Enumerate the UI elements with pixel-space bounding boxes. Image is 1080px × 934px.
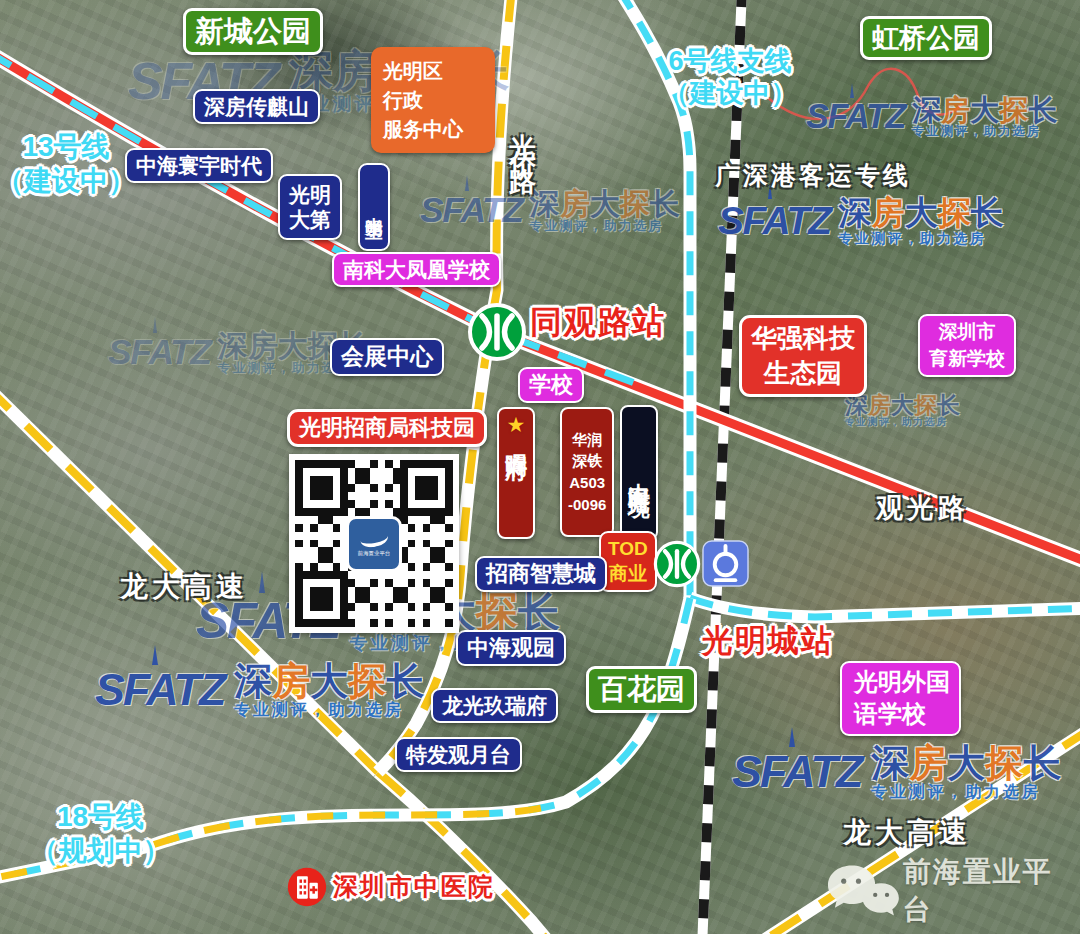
estate-label-chuanqishan: 深房传麒山 — [193, 89, 320, 124]
school-label-nankeda: 南科大凤凰学校 — [332, 252, 501, 287]
qr-logo-text: 前海置业平台 — [358, 549, 390, 557]
qr-code: 前海置业平台 — [289, 454, 459, 633]
plot-label-huarun: 华润 深铁 A503 -0096 — [560, 407, 614, 537]
railway-station-icon — [702, 540, 749, 591]
convention-center-label: 会展中心 — [330, 338, 444, 376]
metro-station-icon — [653, 540, 701, 592]
gov-center-label: 光明区 行政 服务中心 — [371, 47, 495, 153]
park-label-baihua: 百花园 — [586, 666, 697, 713]
station-label-guangmingcheng: 光明城站 — [702, 622, 834, 659]
transit-lines-overlay — [0, 0, 1080, 934]
estate-label-jiurui: 龙光玖瑞府 — [431, 688, 558, 723]
project-label-runhui: ★ 润晖府 — [497, 407, 535, 539]
line18-label: 18号线 （规划中） — [18, 800, 183, 867]
road-label-guanguang: 观光路 — [876, 492, 969, 524]
longda-se-casing — [378, 772, 568, 934]
satellite-map: SFATZ 深房大探长专业测评，助力选房 SFATZ 深房大探长专业测评，助力选… — [0, 0, 1080, 934]
estate-label-tefa: 特发观月台 — [395, 737, 522, 772]
road-label-longda-west: 龙大高速 — [120, 570, 248, 604]
huaqiang-eco-park-label: 华强科技 生态园 — [739, 315, 867, 397]
metro-station-icon — [467, 302, 527, 366]
school-label-generic: 学校 — [518, 367, 584, 403]
estate-label-guanyuan: 中海观园 — [456, 630, 566, 666]
estate-label-dadi: 光明 大第 — [278, 174, 342, 240]
station-label-tongguan: 同观路站 — [530, 303, 666, 341]
estate-label-zhaoshang-smart: 招商智慧城 — [475, 556, 607, 592]
star-icon: ★ — [507, 414, 526, 435]
road-label-guangqiao: 光侨路 — [506, 112, 538, 163]
line13-label: 13号线 （建设中） — [0, 130, 136, 197]
school-label-foreign: 光明外国 语学校 — [840, 661, 961, 736]
park-label-hongqiao: 虹桥公园 — [860, 16, 992, 60]
estate-label-huanyu: 中海寰宇时代 — [125, 148, 273, 183]
park-label-xincheng: 新城公园 — [183, 8, 323, 55]
wechat-watermark: 前海置业平台 — [826, 853, 1080, 929]
project-label-zhonghai-time: 中海时光境 — [620, 405, 658, 540]
intercity-rail-label: 广深港客运专线 — [715, 160, 911, 190]
qr-center-logo: 前海置业平台 — [346, 516, 402, 572]
zhaoshang-tech-park-label: 光明招商局科技园 — [287, 409, 487, 447]
estate-label-guangmingli: 光明里 — [358, 163, 390, 251]
hospital-icon — [287, 867, 327, 911]
school-label-yuxin: 深圳市 育新学校 — [918, 314, 1016, 377]
wechat-brand-text: 前海置业平台 — [903, 853, 1080, 929]
runhui-name: 润晖府 — [505, 435, 527, 532]
road-label-longda-east: 龙大高速 — [843, 816, 971, 850]
swoosh-icon — [359, 527, 390, 549]
line6-label: 6号线支线 （建设中） — [645, 45, 815, 110]
hospital-label: 深圳市中医院 — [333, 871, 495, 901]
tod-commerce-label: TOD 商业 — [599, 531, 657, 592]
wechat-icon — [826, 863, 901, 919]
